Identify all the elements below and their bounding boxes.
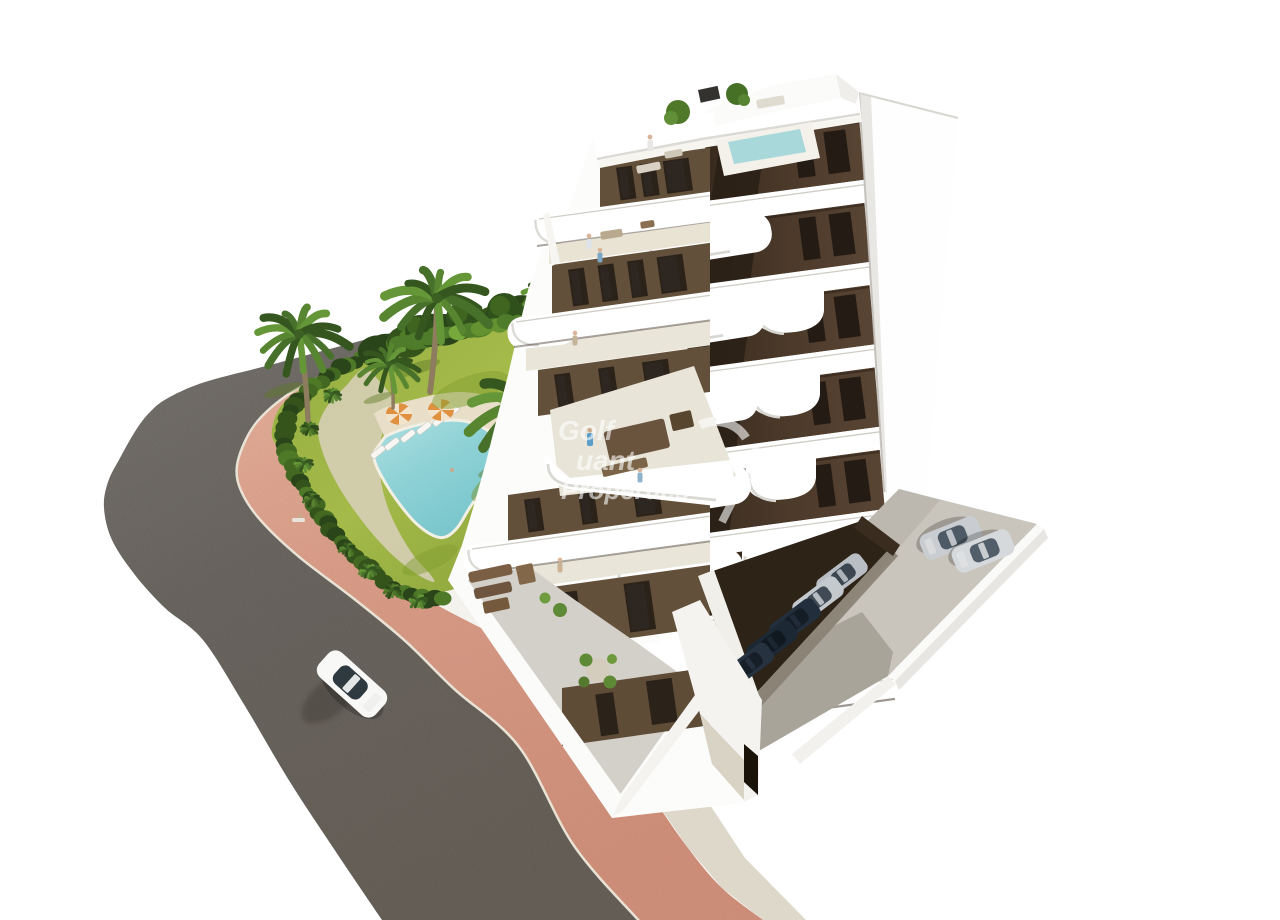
svg-text:uant: uant [576,445,637,476]
svg-text:Golf: Golf [558,415,617,446]
svg-text:Properties: Properties [561,475,690,505]
